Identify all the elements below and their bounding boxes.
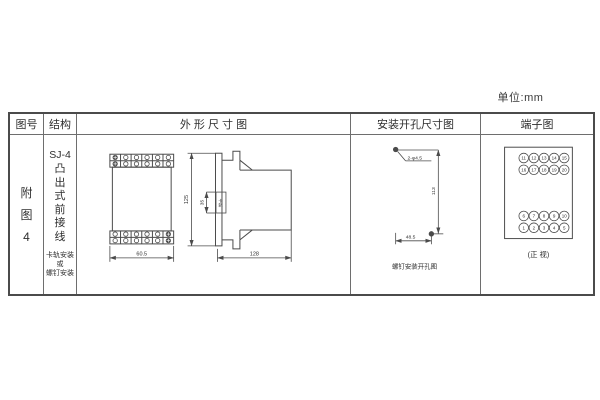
side-view: [215, 151, 291, 249]
header-structure: 结构: [44, 114, 77, 135]
header-figure-no: 图号: [10, 114, 44, 135]
terminal-number: 19: [552, 167, 558, 172]
structure-type: 凸 出 式 前 接 线: [55, 163, 66, 244]
rail-label: 卡轨: [218, 198, 224, 208]
terminal-number: 20: [562, 167, 568, 172]
terminal-number: 16: [521, 167, 527, 172]
hole-diameter-label: 2-φ4.5: [408, 155, 423, 161]
rail-dim-label: 35: [200, 200, 206, 206]
mounting-hole-top: [393, 147, 398, 152]
terminal-number: 6: [522, 214, 525, 219]
terminal-number: 12: [531, 156, 537, 161]
terminal-number: 9: [553, 214, 556, 219]
outline-dimension-drawing: 60.5: [77, 135, 350, 294]
outline-drawing-cell: 60.5: [77, 135, 351, 294]
terminal-number: 1: [522, 225, 525, 230]
terminal-number: 11: [521, 156, 526, 161]
height-dimension: [188, 153, 216, 246]
front-width-label: 60.5: [136, 251, 147, 257]
horizontal-dim-label: 48.5: [406, 234, 416, 240]
figure-number: 附 图 4: [20, 182, 32, 248]
terminal-number: 18: [541, 167, 547, 172]
terminal-number: 13: [541, 156, 547, 161]
figure-no-cell: 附 图 4: [10, 135, 44, 294]
terminal-number: 10: [562, 214, 568, 219]
mounting-dim-lines: [396, 150, 444, 244]
terminal-number: 17: [531, 167, 537, 172]
mounting-hole-bottom: [429, 232, 434, 237]
terminal-number: 3: [543, 225, 546, 230]
vertical-dim-label: 113: [431, 187, 437, 195]
terminal-number: 5: [563, 225, 566, 230]
terminal-number: 15: [562, 156, 568, 161]
terminal-number: 8: [543, 214, 546, 219]
mounting-caption: 螺钉安装开孔图: [392, 262, 437, 271]
terminal-number: 4: [553, 225, 556, 230]
screw-terminal-icon: [113, 155, 171, 243]
terminal-caption: (正 视): [528, 250, 550, 259]
mounting-note: 卡轨安装 或 螺钉安装: [46, 251, 74, 278]
dimension-table: 图号 结构 外 形 尺 寸 图 安装开孔尺寸图 端子图 附 图 4 SJ-4 凸…: [8, 112, 595, 296]
depth-label: 128: [250, 251, 259, 257]
header-mounting: 安装开孔尺寸图: [351, 114, 481, 135]
mounting-drawing-cell: 2-φ4.5 113 48.5 螺钉安装开孔图: [351, 135, 481, 294]
rail-dimension: [207, 192, 216, 213]
terminal-diagram: 11 12 13 14 15 16 17 18 19 20 6 7 8 9 10…: [481, 135, 593, 294]
front-view: [110, 154, 174, 244]
front-view-terminals: [113, 155, 171, 243]
header-outline: 外 形 尺 寸 图: [77, 114, 351, 135]
terminal-number: 2: [533, 225, 536, 230]
unit-label: 单位:mm: [483, 89, 558, 105]
mounting-hole-drawing: 2-φ4.5 113 48.5 螺钉安装开孔图: [351, 135, 480, 294]
header-terminal: 端子图: [481, 114, 593, 135]
terminal-circles: [519, 153, 569, 232]
terminal-number: 14: [552, 156, 558, 161]
height-label: 125: [184, 195, 190, 204]
structure-cell: SJ-4 凸 出 式 前 接 线 卡轨安装 或 螺钉安装: [44, 135, 77, 294]
terminal-number: 7: [533, 214, 536, 219]
datasheet-page: 单位:mm 图号 结构 外 形 尺 寸 图 安装开孔尺寸图 端子图 附 图 4 …: [0, 0, 600, 400]
relay-model: SJ-4: [49, 149, 71, 161]
terminal-drawing-cell: 11 12 13 14 15 16 17 18 19 20 6 7 8 9 10…: [481, 135, 593, 294]
